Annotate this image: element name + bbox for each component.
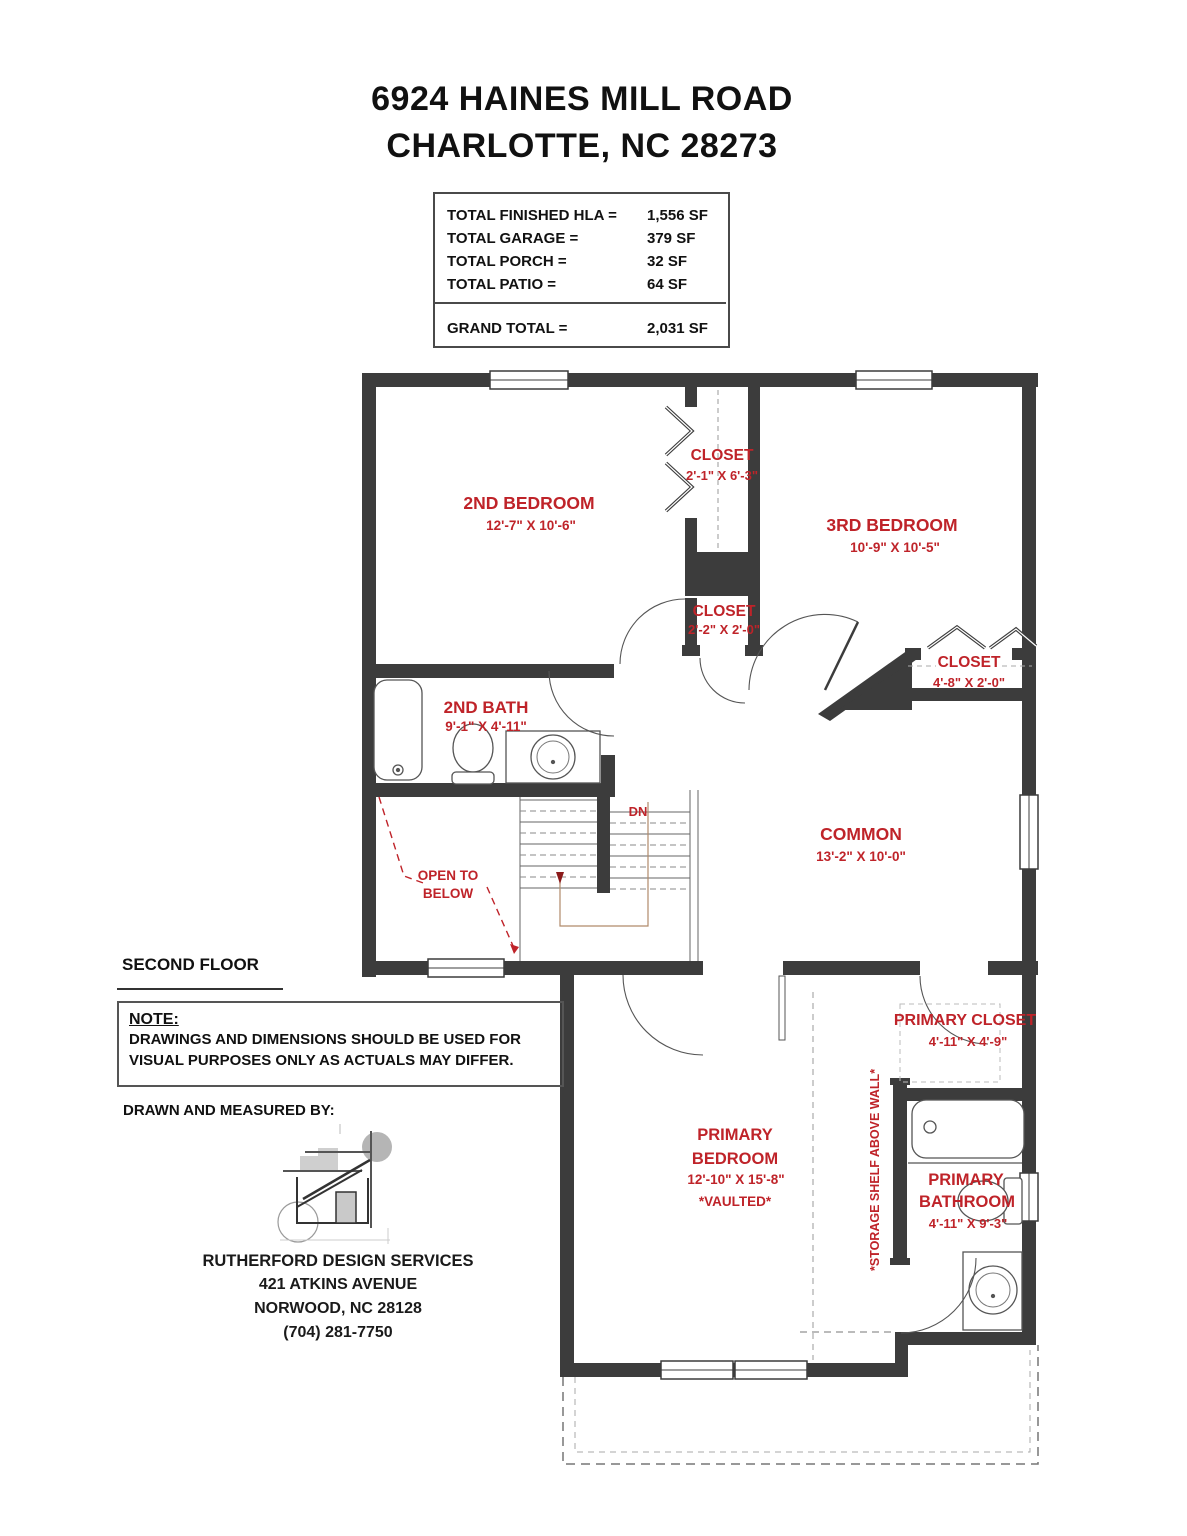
- door-arc-primary-bedroom: [623, 975, 703, 1055]
- company-address2: NORWOOD, NC 28128: [188, 1297, 488, 1321]
- note-line: VISUAL PURPOSES ONLY AS ACTUALS MAY DIFF…: [129, 1050, 552, 1071]
- company-info: RUTHERFORD DESIGN SERVICES 421 ATKINS AV…: [188, 1249, 488, 1345]
- wall-cap: [890, 1258, 910, 1265]
- company-name: RUTHERFORD DESIGN SERVICES: [188, 1249, 488, 1273]
- wall-closet1-stub-top: [685, 387, 697, 407]
- door-arc-bedroom2: [620, 599, 685, 664]
- wall-primary-bottom: [560, 1363, 908, 1377]
- room-label-closet1: CLOSET: [691, 447, 754, 464]
- note-title: NOTE:: [129, 1011, 552, 1029]
- door-leaf: [825, 622, 858, 690]
- room-dims-primary-bathroom: 4'-11" X 9'-3": [929, 1216, 1008, 1231]
- wall-top: [362, 373, 1038, 387]
- wall-closet1-stub-mid: [685, 518, 697, 552]
- wall-bath2-top: [362, 664, 614, 678]
- room-label-closet2: CLOSET: [693, 603, 756, 620]
- logo-door: [336, 1192, 356, 1223]
- drawn-by-label: DRAWN AND MEASURED BY:: [123, 1102, 335, 1119]
- room-dims-closet1: 2'-1" X 6'-3": [686, 468, 758, 483]
- floor-name-label: SECOND FLOOR: [122, 955, 259, 975]
- logo-circle-fill: [362, 1132, 392, 1162]
- disclaimer-note-box: NOTE: DRAWINGS AND DIMENSIONS SHOULD BE …: [117, 1001, 564, 1087]
- stairs-dn-label: DN: [629, 804, 648, 819]
- company-phone: (704) 281-7750: [188, 1321, 488, 1345]
- room-dims-common: 13'-2" X 10'-0": [816, 849, 906, 864]
- note-line: DRAWINGS AND DIMENSIONS SHOULD BE USED F…: [129, 1029, 552, 1050]
- room-label-bedroom3: 3RD BEDROOM: [826, 515, 957, 535]
- open-below-label-2: BELOW: [423, 886, 474, 901]
- door-arc-closet2: [700, 658, 745, 703]
- room-label-common: COMMON: [820, 824, 902, 844]
- wall-pbath-left: [893, 1082, 907, 1262]
- wall-closet3-stub2: [1012, 648, 1024, 660]
- room-label-closet3: CLOSET: [938, 654, 1001, 671]
- bathtub-icon: [912, 1100, 1024, 1158]
- floor-plan-drawing: 2ND BEDROOM 12'-7" X 10'-6" CLOSET 2'-1"…: [0, 0, 1187, 1536]
- storage-shelf-note: *STORAGE SHELF ABOVE WALL*: [868, 1069, 882, 1271]
- wall-cap: [682, 645, 700, 656]
- room-label-primary-bedroom-1: PRIMARY: [697, 1126, 772, 1144]
- wall-pcloset-divider: [895, 1088, 1036, 1101]
- room-label-primary-bathroom-1: PRIMARY: [928, 1171, 1003, 1189]
- door-arc-bath2: [549, 671, 614, 736]
- walkline-arrow-icon: [556, 872, 564, 884]
- chase-box: [685, 552, 760, 596]
- door-gap-primary-bedroom: [703, 960, 783, 976]
- leader-arrow-icon: [510, 944, 519, 954]
- room-note-vaulted: *VAULTED*: [699, 1194, 772, 1209]
- open-below-label-1: OPEN TO: [418, 868, 479, 883]
- logo-shade: [300, 1156, 338, 1170]
- room-label-bedroom2: 2ND BEDROOM: [463, 493, 594, 513]
- room-dims-bedroom3: 10'-9" X 10'-5": [850, 540, 940, 555]
- door-gap-primary-closet: [920, 960, 988, 976]
- wall-bath2-bottom: [362, 783, 615, 797]
- room-label-primary-bedroom-2: BEDROOM: [692, 1150, 778, 1168]
- door-leaf: [779, 976, 785, 1040]
- toilet-base: [452, 772, 494, 784]
- room-dims-closet3: 4'-8" X 2'-0": [933, 675, 1005, 690]
- company-logo: [278, 1124, 392, 1244]
- wall-stair-center: [597, 790, 610, 893]
- room-label-primary-bathroom-2: BATHROOM: [919, 1193, 1015, 1211]
- room-label-bath2: 2ND BATH: [444, 698, 529, 717]
- company-address1: 421 ATKINS AVENUE: [188, 1273, 488, 1297]
- floor-plan-page: 6924 HAINES MILL ROAD CHARLOTTE, NC 2827…: [0, 0, 1187, 1536]
- door-arc-bedroom3: [749, 614, 858, 690]
- room-dims-bedroom2: 12'-7" X 10'-6": [486, 518, 576, 533]
- room-dims-closet2: 2'-2" X 2'-0": [688, 622, 760, 637]
- room-dims-primary-bedroom: 12'-10" X 15'-8": [687, 1172, 784, 1187]
- room-dims-primary-closet: 4'-11" X 4'-9": [929, 1034, 1008, 1049]
- wall-closet3-stub: [905, 648, 921, 660]
- room-dims-bath2: 9'-1" X 4'-11": [445, 719, 527, 734]
- wall-bath-bottom: [895, 1332, 1036, 1345]
- floor-label-underline: [117, 988, 283, 990]
- room-label-primary-closet: PRIMARY CLOSET: [894, 1012, 1036, 1029]
